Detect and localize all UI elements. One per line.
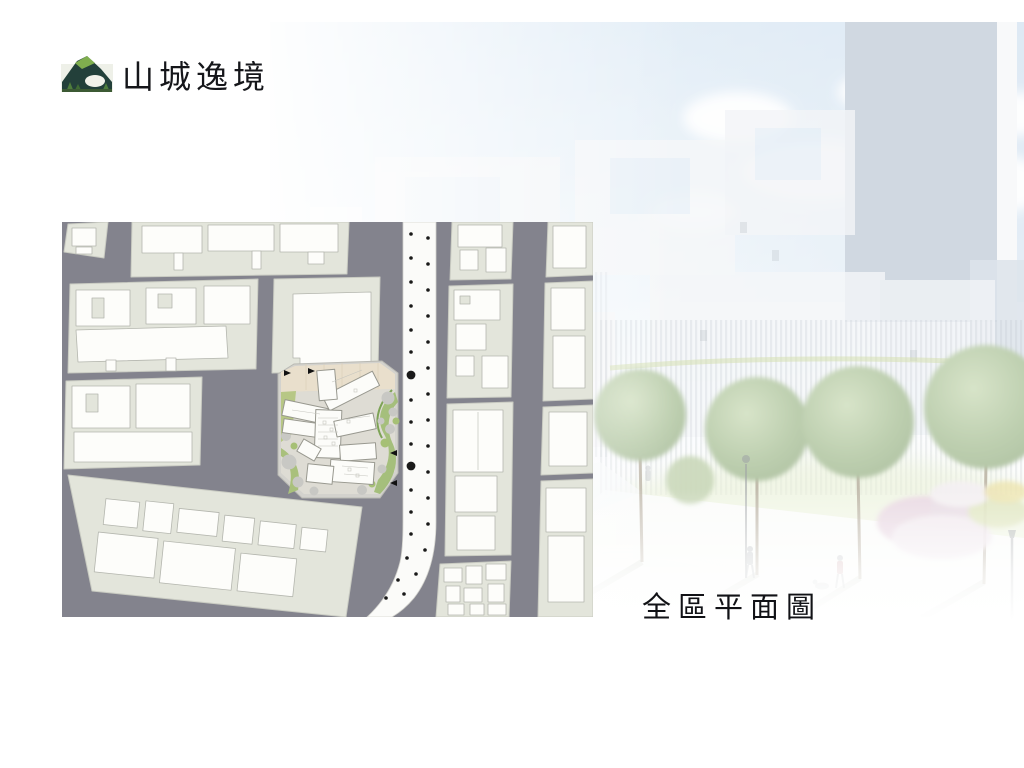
mountain-logo-icon <box>60 54 114 96</box>
logo-text: 山城逸境 <box>122 52 270 98</box>
project-site <box>278 361 400 498</box>
site-plan-map <box>62 222 593 617</box>
slide-caption: 全區平面圖 <box>642 584 822 626</box>
app-logo: 山城逸境 <box>60 52 270 98</box>
presentation-slide: 山城逸境 全區平面圖 <box>0 0 1024 768</box>
